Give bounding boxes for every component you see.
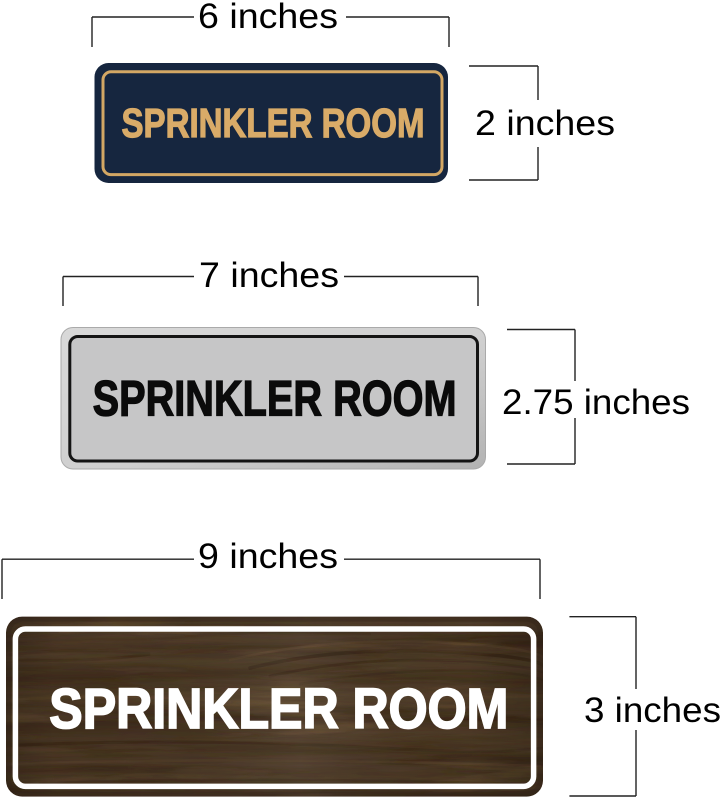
svg-text:9 inches: 9 inches [198,537,338,576]
svg-text:2 inches: 2 inches [475,104,615,143]
svg-text:7 inches: 7 inches [199,256,339,295]
svg-text:6 inches: 6 inches [198,0,338,36]
svg-text:SPRINKLER ROOM: SPRINKLER ROOM [122,100,425,146]
svg-text:SPRINKLER ROOM: SPRINKLER ROOM [49,677,508,741]
svg-text:2.75 inches: 2.75 inches [502,383,690,422]
svg-text:SPRINKLER ROOM: SPRINKLER ROOM [93,371,457,427]
svg-text:3 inches: 3 inches [584,691,721,730]
